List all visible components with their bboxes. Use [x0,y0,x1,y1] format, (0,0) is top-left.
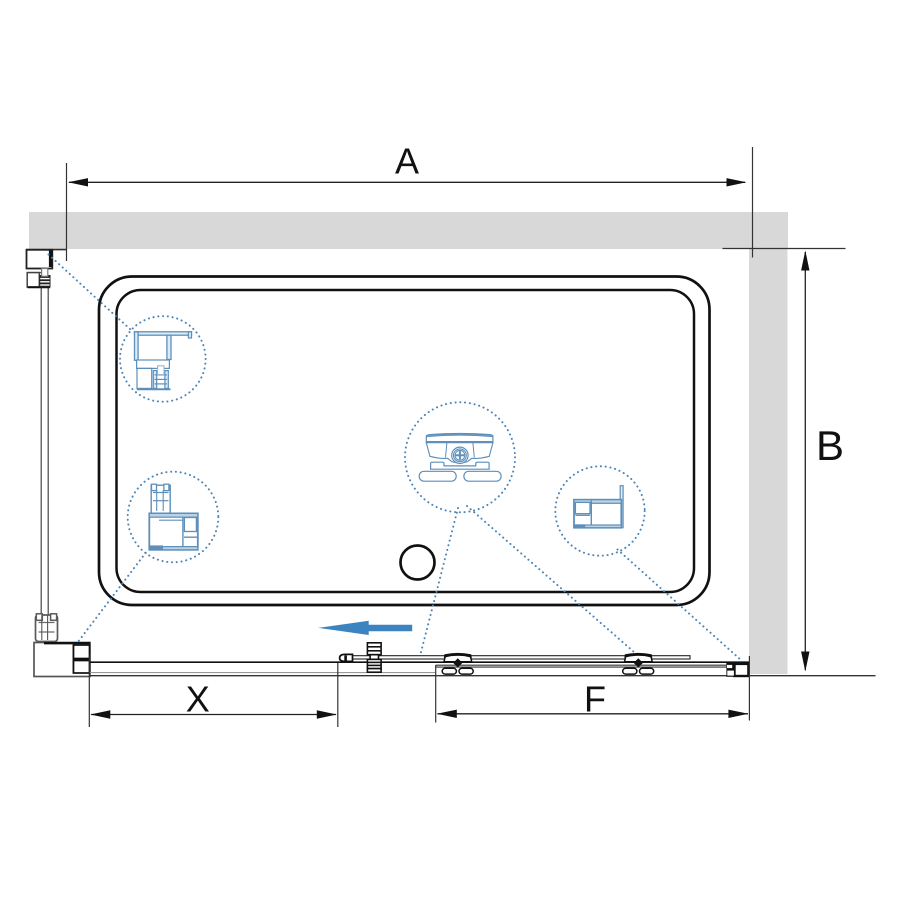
svg-text:B: B [816,422,844,469]
svg-text:A: A [395,141,419,182]
svg-text:F: F [584,679,606,720]
svg-text:X: X [186,679,210,720]
